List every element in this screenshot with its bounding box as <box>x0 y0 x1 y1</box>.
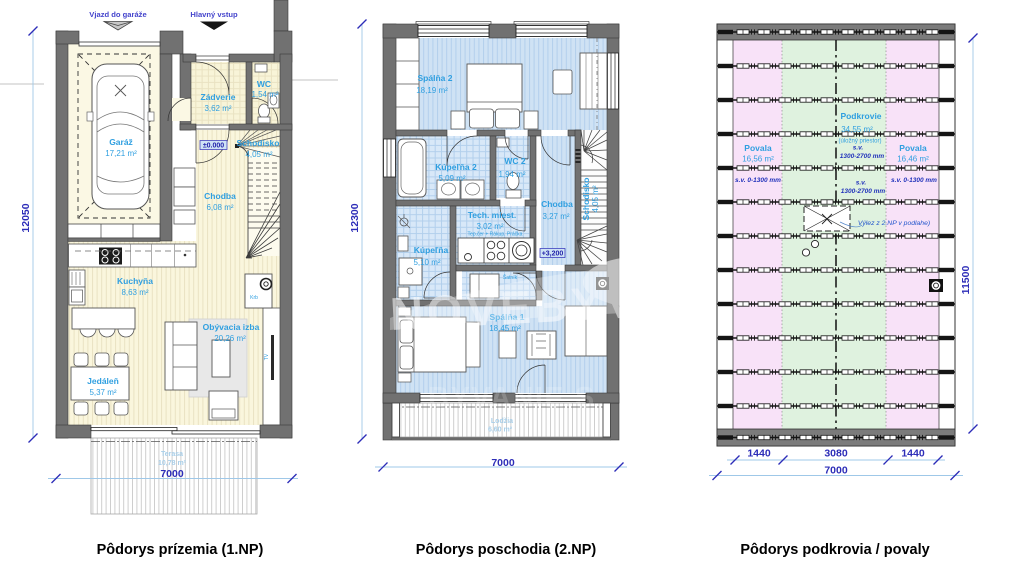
svg-text:20,26 m²: 20,26 m² <box>214 334 246 343</box>
svg-text:10,78 m²: 10,78 m² <box>158 460 187 467</box>
svg-text:Schodisko: Schodisko <box>237 138 280 148</box>
svg-text:1,94 m²: 1,94 m² <box>498 170 525 179</box>
svg-text:±0.000: ±0.000 <box>203 143 224 150</box>
svg-text:s.v.: s.v. <box>853 145 864 152</box>
svg-text:5,09 m²: 5,09 m² <box>438 174 465 183</box>
svg-text:3,62 m²: 3,62 m² <box>204 104 231 113</box>
svg-text:Lodžia: Lodžia <box>491 418 513 425</box>
svg-text:3080: 3080 <box>824 448 848 460</box>
svg-text:1300-2700 mm: 1300-2700 mm <box>840 153 885 160</box>
svg-text:Jedáleň: Jedáleň <box>87 376 119 386</box>
svg-text:Vjazd do garáže: Vjazd do garáže <box>89 10 146 19</box>
svg-text:s.v.: s.v. <box>856 180 867 187</box>
svg-text:+3,200: +3,200 <box>542 251 564 258</box>
svg-text:Šatník: Šatník <box>503 274 518 281</box>
svg-text:12050: 12050 <box>20 203 32 232</box>
svg-text:18,19 m²: 18,19 m² <box>416 86 448 95</box>
svg-text:Povala: Povala <box>899 143 927 153</box>
svg-text:Garáž: Garáž <box>109 137 133 147</box>
svg-text:5,10 m²: 5,10 m² <box>413 258 440 267</box>
svg-text:4,05 m²: 4,05 m² <box>591 185 600 212</box>
svg-text:TV: TV <box>264 353 270 360</box>
svg-text:Výlez z 2.NP v podlahe): Výlez z 2.NP v podlahe) <box>858 220 930 227</box>
svg-text:Hlavný vstup: Hlavný vstup <box>190 10 238 19</box>
svg-text:Povala: Povala <box>744 143 772 153</box>
svg-text:34,55 m²: 34,55 m² <box>841 125 873 134</box>
svg-text:Krb: Krb <box>250 295 258 301</box>
svg-text:WC 2: WC 2 <box>504 156 526 166</box>
svg-text:BYVANIE.S: BYVANIE.S <box>428 382 596 414</box>
svg-text:s.v. 0-1300 mm: s.v. 0-1300 mm <box>735 177 781 184</box>
svg-text:Kuchyňa: Kuchyňa <box>117 276 153 286</box>
svg-text:17,21 m²: 17,21 m² <box>105 149 137 158</box>
svg-text:1,54 m²: 1,54 m² <box>251 90 278 99</box>
svg-text:5,37 m²: 5,37 m² <box>89 388 116 397</box>
svg-text:1300-2700 mm: 1300-2700 mm <box>841 188 886 195</box>
svg-text:6,60 m²: 6,60 m² <box>488 427 513 434</box>
svg-text:6,08 m²: 6,08 m² <box>206 203 233 212</box>
svg-text:Pôdorys poschodia (2.NP): Pôdorys poschodia (2.NP) <box>416 542 597 558</box>
svg-text:1440: 1440 <box>747 448 771 460</box>
svg-text:Tech. miest.: Tech. miest. <box>468 210 517 220</box>
svg-text:Chodba: Chodba <box>204 191 236 201</box>
svg-text:8,63 m²: 8,63 m² <box>121 288 148 297</box>
svg-text:7000: 7000 <box>824 465 848 477</box>
svg-text:Spálňa 2: Spálňa 2 <box>418 73 453 83</box>
svg-text:Pôdorys podkrovia / povaly: Pôdorys podkrovia / povaly <box>740 542 929 558</box>
svg-text:16,46 m²: 16,46 m² <box>897 155 929 164</box>
svg-text:12300: 12300 <box>349 203 361 232</box>
svg-text:Obývacia izba: Obývacia izba <box>203 322 260 332</box>
svg-text:16,56 m²: 16,56 m² <box>742 155 774 164</box>
svg-text:WC: WC <box>257 79 271 89</box>
svg-text:Kúpeľňa: Kúpeľňa <box>414 245 449 255</box>
svg-text:Kúpeľňa 2: Kúpeľňa 2 <box>435 162 477 172</box>
svg-text:1440: 1440 <box>901 448 925 460</box>
svg-text:Zádverie: Zádverie <box>201 92 236 102</box>
svg-text:Tep.čer + Rákup. Práčka: Tep.čer + Rákup. Práčka <box>468 232 523 238</box>
svg-text:Terasa: Terasa <box>161 451 183 458</box>
svg-text:3,02 m²: 3,02 m² <box>476 222 503 231</box>
svg-text:7000: 7000 <box>160 468 184 480</box>
svg-text:Podkrovie: Podkrovie <box>840 111 881 121</box>
svg-text:Pôdorys prízemia (1.NP): Pôdorys prízemia (1.NP) <box>97 542 264 558</box>
svg-text:Schodisko: Schodisko <box>581 178 591 221</box>
svg-text:Chodba: Chodba <box>541 199 573 209</box>
svg-text:s.v. 0-1300 mm: s.v. 0-1300 mm <box>891 177 937 184</box>
svg-text:11500: 11500 <box>960 266 972 295</box>
svg-text:7000: 7000 <box>491 457 515 469</box>
svg-text:4,05 m²: 4,05 m² <box>245 150 272 159</box>
svg-text:3,27 m²: 3,27 m² <box>542 212 569 221</box>
